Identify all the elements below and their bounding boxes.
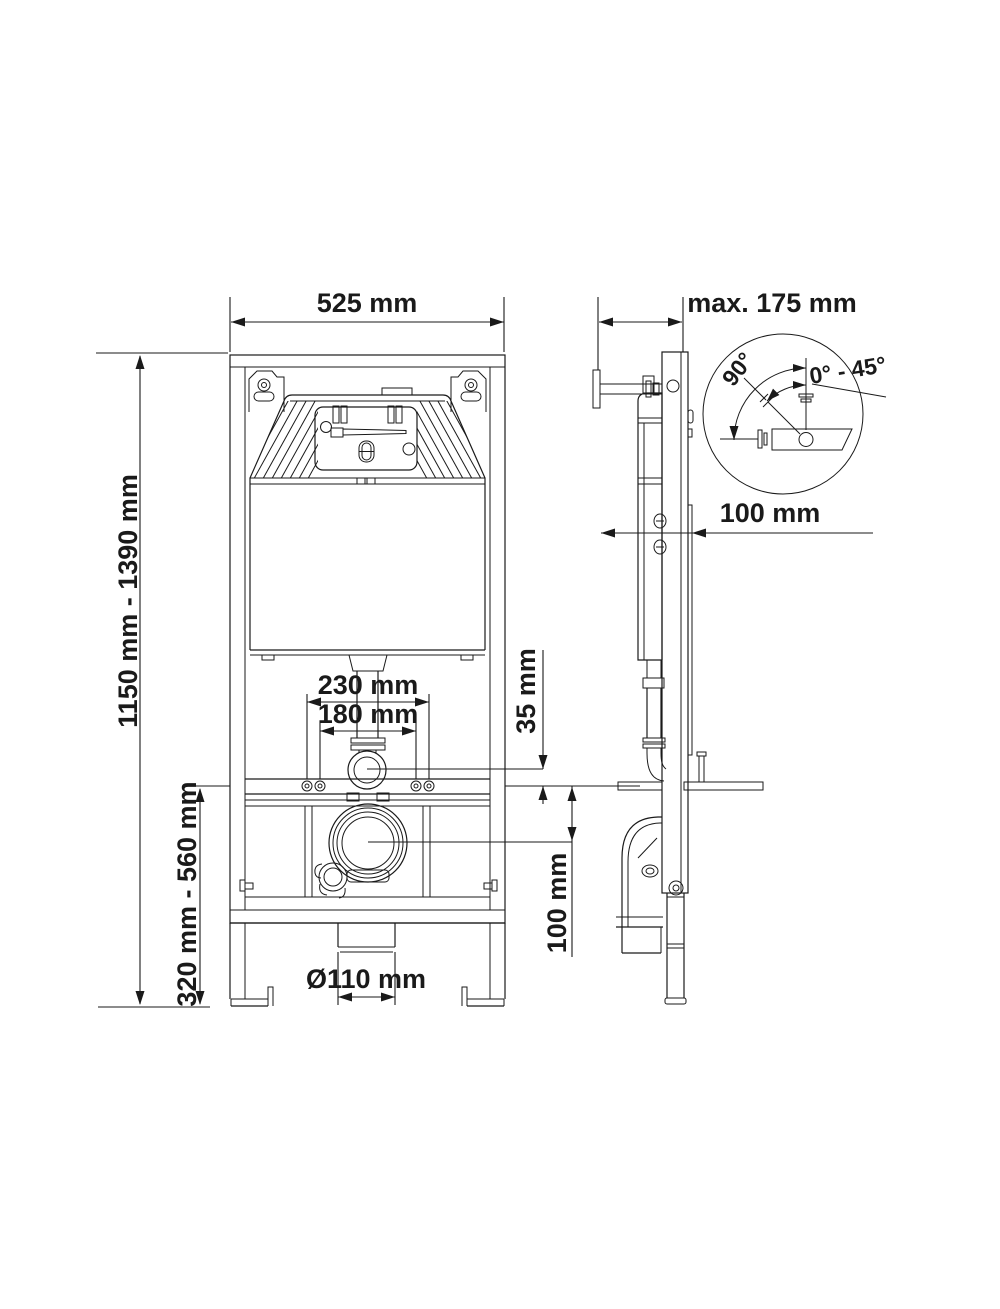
dim-flush-offset-label: 35 mm [511, 648, 541, 734]
dim-flush-outer-label: 230 mm [318, 670, 419, 700]
dim-bowl-height-range-label: 320 mm - 560 mm [172, 781, 202, 1006]
dim-depth-max-label: max. 175 mm [687, 288, 857, 318]
dim-outlet-center-label: 100 mm [542, 853, 572, 954]
dim-height-range-label: 1150 mm - 1390 mm [113, 474, 143, 728]
technical-drawing: 90° 0° - 45° 525 mm 1150 mm - 1390 mm 32… [0, 0, 1000, 1309]
dim-wall-offset-label: 100 mm [720, 498, 821, 528]
dim-width-label: 525 mm [317, 288, 418, 318]
canvas [0, 0, 1000, 1309]
dim-outlet-diameter-label: Ø110 mm [306, 964, 426, 994]
dim-flush-inner-label: 180 mm [318, 699, 419, 729]
